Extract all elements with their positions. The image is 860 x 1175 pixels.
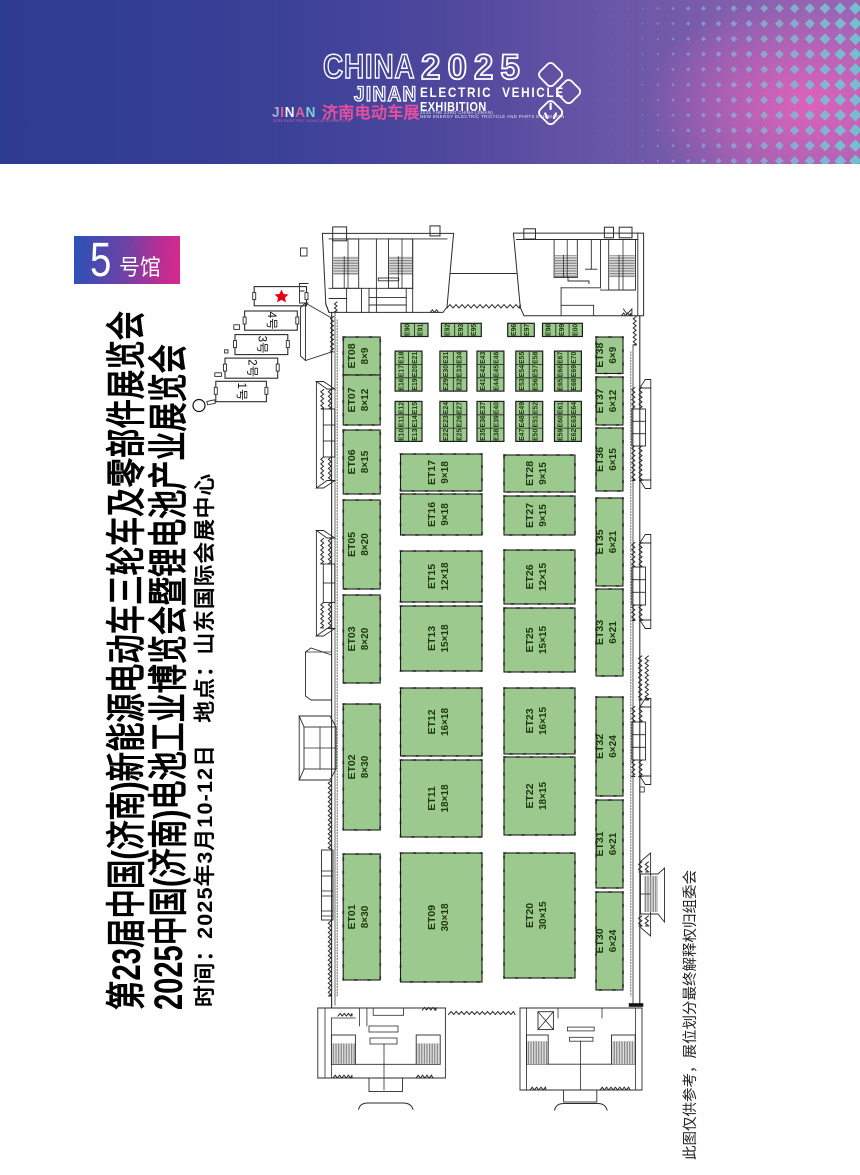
- svg-text:E29: E29: [443, 378, 450, 390]
- svg-text:ET31: ET31: [594, 831, 606, 856]
- svg-text:E45: E45: [494, 365, 501, 377]
- svg-text:16×18: 16×18: [440, 708, 451, 737]
- svg-text:E18: E18: [398, 352, 405, 364]
- svg-text:ET08: ET08: [346, 343, 358, 368]
- svg-text:E23: E23: [443, 415, 450, 427]
- svg-text:ET02: ET02: [346, 754, 358, 779]
- svg-text:E46: E46: [494, 352, 501, 364]
- svg-text:E00: E00: [572, 324, 579, 336]
- svg-text:15×15: 15×15: [538, 626, 549, 655]
- svg-text:ET13: ET13: [426, 626, 438, 651]
- svg-text:ET26: ET26: [524, 564, 536, 589]
- svg-text:E58: E58: [533, 352, 540, 364]
- svg-text:E39: E39: [494, 415, 501, 427]
- svg-text:6×12: 6×12: [608, 389, 619, 412]
- svg-text:6×15: 6×15: [608, 448, 619, 471]
- svg-text:ET23: ET23: [524, 708, 536, 733]
- svg-text:E14: E14: [412, 415, 419, 427]
- svg-text:E20: E20: [412, 365, 419, 377]
- svg-text:E55: E55: [519, 352, 526, 364]
- svg-text:6×24: 6×24: [608, 735, 619, 758]
- svg-text:E19: E19: [412, 378, 419, 390]
- svg-text:6×21: 6×21: [608, 530, 619, 553]
- svg-text:E12: E12: [398, 402, 405, 414]
- svg-text:E53: E53: [519, 378, 526, 390]
- svg-text:E99: E99: [559, 324, 566, 336]
- svg-text:E63: E63: [571, 415, 578, 427]
- svg-text:E35: E35: [480, 429, 487, 441]
- svg-text:9×15: 9×15: [538, 504, 549, 527]
- svg-text:E13: E13: [412, 429, 419, 441]
- svg-text:E40: E40: [494, 402, 501, 414]
- svg-text:ET07: ET07: [346, 387, 358, 412]
- svg-text:8×9: 8×9: [360, 347, 371, 364]
- svg-text:E32: E32: [457, 378, 464, 390]
- svg-text:ET27: ET27: [524, 503, 536, 528]
- svg-text:ET28: ET28: [524, 461, 536, 486]
- svg-text:ET20: ET20: [524, 903, 536, 928]
- svg-text:ET22: ET22: [524, 783, 536, 808]
- svg-text:E60: E60: [558, 415, 565, 427]
- svg-text:6×24: 6×24: [608, 929, 619, 952]
- svg-text:6×21: 6×21: [608, 621, 619, 644]
- svg-text:ET17: ET17: [426, 460, 438, 485]
- svg-text:16×15: 16×15: [538, 707, 549, 736]
- svg-text:E61: E61: [558, 402, 565, 414]
- svg-text:ET06: ET06: [346, 449, 358, 474]
- svg-text:ET09: ET09: [426, 905, 438, 930]
- svg-text:E97: E97: [524, 324, 531, 336]
- svg-text:30×18: 30×18: [440, 903, 451, 932]
- svg-text:E22: E22: [443, 429, 450, 441]
- svg-text:18×15: 18×15: [538, 782, 549, 811]
- svg-text:E37: E37: [480, 402, 487, 414]
- svg-text:8×15: 8×15: [360, 450, 371, 473]
- svg-text:9×18: 9×18: [440, 461, 451, 484]
- svg-text:ET32: ET32: [594, 734, 606, 759]
- svg-text:E59: E59: [558, 429, 565, 441]
- svg-text:E93: E93: [458, 324, 465, 336]
- svg-text:8×12: 8×12: [360, 388, 371, 411]
- svg-text:ET37: ET37: [594, 388, 606, 413]
- svg-text:E95: E95: [471, 324, 478, 336]
- svg-text:E57: E57: [533, 365, 540, 377]
- svg-text:E92: E92: [445, 324, 452, 336]
- svg-text:1号: 1号: [235, 383, 248, 401]
- svg-text:8×30: 8×30: [360, 755, 371, 778]
- svg-text:9×18: 9×18: [440, 503, 451, 526]
- svg-text:E33: E33: [457, 365, 464, 377]
- svg-text:E17: E17: [398, 365, 405, 377]
- svg-text:E26: E26: [457, 415, 464, 427]
- svg-text:E48: E48: [519, 415, 526, 427]
- svg-text:ET01: ET01: [346, 904, 358, 929]
- svg-text:ET25: ET25: [524, 627, 536, 652]
- svg-text:E98: E98: [546, 324, 553, 336]
- svg-text:E41: E41: [480, 378, 487, 390]
- svg-text:E51: E51: [533, 415, 540, 427]
- svg-text:ET36: ET36: [594, 447, 606, 472]
- svg-text:E96: E96: [511, 324, 518, 336]
- svg-text:ET35: ET35: [594, 529, 606, 554]
- svg-text:E24: E24: [443, 402, 450, 414]
- svg-text:ET30: ET30: [594, 928, 606, 953]
- svg-text:8×30: 8×30: [360, 905, 371, 928]
- svg-text:E25: E25: [457, 429, 464, 441]
- svg-text:E67: E67: [558, 352, 565, 364]
- svg-text:E11: E11: [398, 415, 405, 427]
- svg-text:E44: E44: [494, 378, 501, 390]
- svg-text:4号: 4号: [265, 312, 278, 330]
- svg-text:E49: E49: [519, 402, 526, 414]
- svg-text:ET11: ET11: [426, 786, 438, 811]
- svg-text:E65: E65: [558, 378, 565, 390]
- svg-text:E90: E90: [404, 324, 411, 336]
- svg-text:E52: E52: [533, 402, 540, 414]
- svg-text:ET03: ET03: [346, 626, 358, 651]
- svg-text:E34: E34: [457, 352, 464, 364]
- svg-text:E54: E54: [519, 365, 526, 377]
- svg-text:E43: E43: [480, 352, 487, 364]
- svg-text:E91: E91: [418, 324, 425, 336]
- svg-text:12×15: 12×15: [538, 563, 549, 592]
- svg-text:ET05: ET05: [346, 532, 358, 557]
- svg-text:E16: E16: [398, 378, 405, 390]
- svg-text:E56: E56: [533, 378, 540, 390]
- svg-text:15×18: 15×18: [440, 624, 451, 653]
- svg-text:ET16: ET16: [426, 502, 438, 527]
- svg-text:30×15: 30×15: [538, 901, 549, 930]
- svg-text:E15: E15: [412, 402, 419, 414]
- svg-text:E62: E62: [571, 429, 578, 441]
- svg-text:6×21: 6×21: [608, 832, 619, 855]
- svg-text:3号: 3号: [255, 336, 268, 354]
- svg-text:E30: E30: [443, 365, 450, 377]
- svg-text:2号: 2号: [245, 359, 258, 377]
- svg-text:E10: E10: [398, 429, 405, 441]
- svg-text:8×20: 8×20: [360, 533, 371, 556]
- svg-text:ET33: ET33: [594, 620, 606, 645]
- svg-text:E27: E27: [457, 402, 464, 414]
- svg-text:E70: E70: [571, 352, 578, 364]
- svg-text:E42: E42: [480, 365, 487, 377]
- svg-text:E66: E66: [558, 365, 565, 377]
- svg-text:E36: E36: [480, 415, 487, 427]
- svg-text:8×20: 8×20: [360, 627, 371, 650]
- svg-text:E68: E68: [571, 378, 578, 390]
- svg-text:6×9: 6×9: [608, 346, 619, 363]
- svg-text:E31: E31: [443, 352, 450, 364]
- svg-text:E69: E69: [571, 365, 578, 377]
- svg-text:18×18: 18×18: [440, 784, 451, 813]
- svg-text:12×18: 12×18: [440, 562, 451, 591]
- svg-text:E21: E21: [412, 352, 419, 364]
- svg-text:ET15: ET15: [426, 564, 438, 589]
- svg-text:ET38: ET38: [594, 342, 606, 367]
- svg-text:E47: E47: [519, 429, 526, 441]
- svg-text:E50: E50: [533, 429, 540, 441]
- svg-text:ET12: ET12: [426, 709, 438, 734]
- svg-text:E64: E64: [571, 402, 578, 414]
- svg-text:9×15: 9×15: [538, 462, 549, 485]
- svg-text:E38: E38: [494, 429, 501, 441]
